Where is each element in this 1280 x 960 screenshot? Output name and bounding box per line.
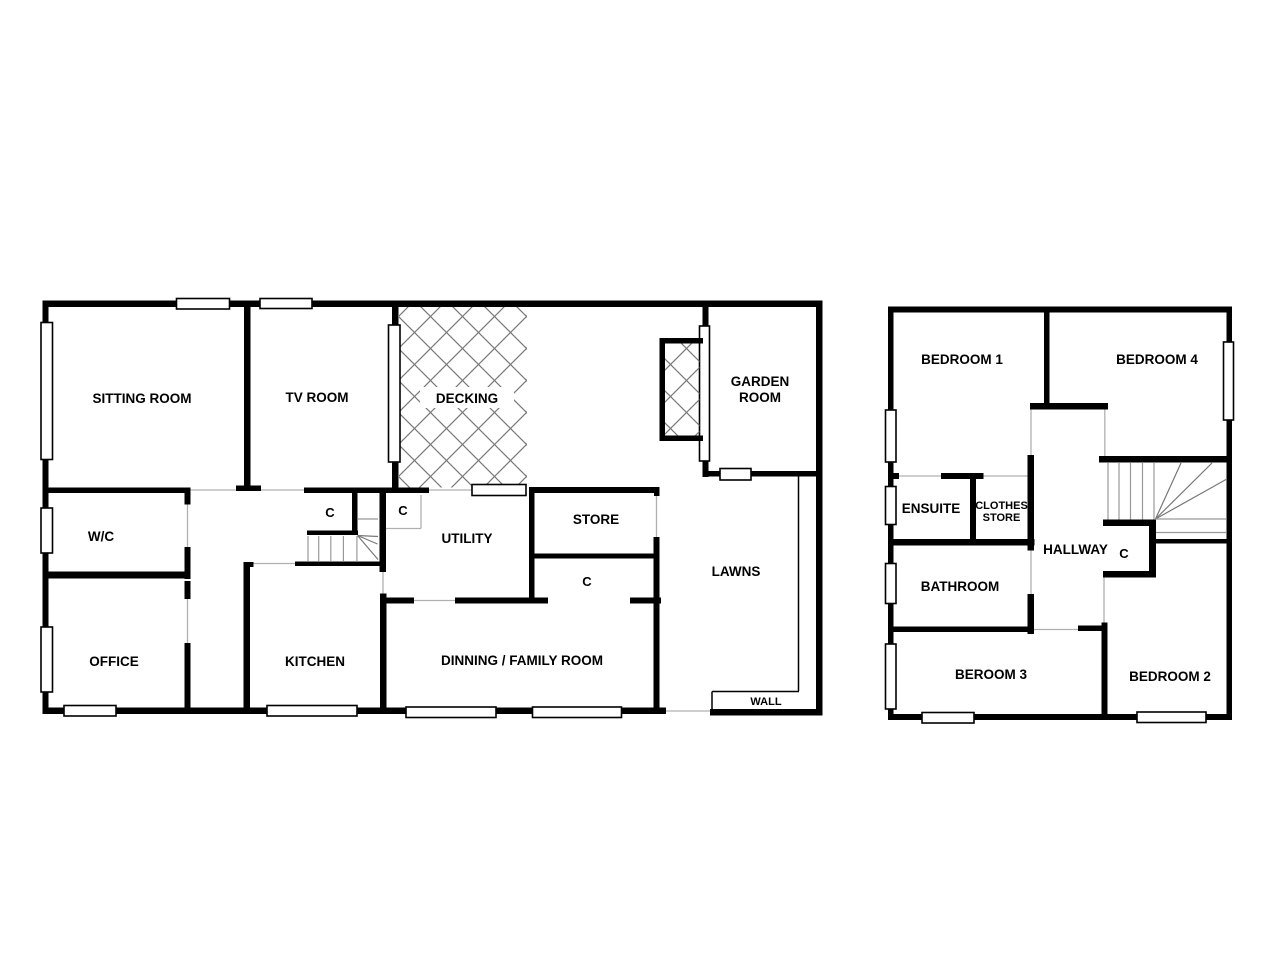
svg-text:GARDEN: GARDEN bbox=[731, 374, 790, 389]
svg-text:C: C bbox=[1119, 546, 1129, 561]
svg-text:BEDROOM 4: BEDROOM 4 bbox=[1116, 352, 1198, 367]
svg-text:TV ROOM: TV ROOM bbox=[286, 390, 349, 405]
svg-text:STORE: STORE bbox=[983, 512, 1021, 524]
svg-text:LAWNS: LAWNS bbox=[712, 564, 761, 579]
svg-text:BEROOM 3: BEROOM 3 bbox=[955, 667, 1028, 682]
svg-text:DECKING: DECKING bbox=[436, 391, 498, 406]
svg-text:BEDROOM 2: BEDROOM 2 bbox=[1129, 669, 1211, 684]
svg-text:ROOM: ROOM bbox=[739, 390, 781, 405]
svg-text:WALL: WALL bbox=[750, 696, 781, 708]
svg-text:C: C bbox=[325, 505, 335, 520]
svg-text:BEDROOM 1: BEDROOM 1 bbox=[921, 352, 1003, 367]
svg-text:HALLWAY: HALLWAY bbox=[1043, 542, 1108, 557]
svg-text:DINNING / FAMILY ROOM: DINNING / FAMILY ROOM bbox=[441, 653, 603, 668]
svg-text:C: C bbox=[398, 503, 408, 518]
svg-text:C: C bbox=[582, 574, 592, 589]
svg-text:BATHROOM: BATHROOM bbox=[921, 579, 1000, 594]
svg-text:ENSUITE: ENSUITE bbox=[902, 501, 961, 516]
svg-text:KITCHEN: KITCHEN bbox=[285, 654, 345, 669]
svg-text:CLOTHES: CLOTHES bbox=[975, 500, 1028, 512]
svg-text:OFFICE: OFFICE bbox=[89, 654, 139, 669]
svg-text:STORE: STORE bbox=[573, 512, 619, 527]
svg-text:UTILITY: UTILITY bbox=[442, 531, 493, 546]
svg-text:SITTING ROOM: SITTING ROOM bbox=[93, 391, 192, 406]
svg-text:W/C: W/C bbox=[88, 529, 114, 544]
